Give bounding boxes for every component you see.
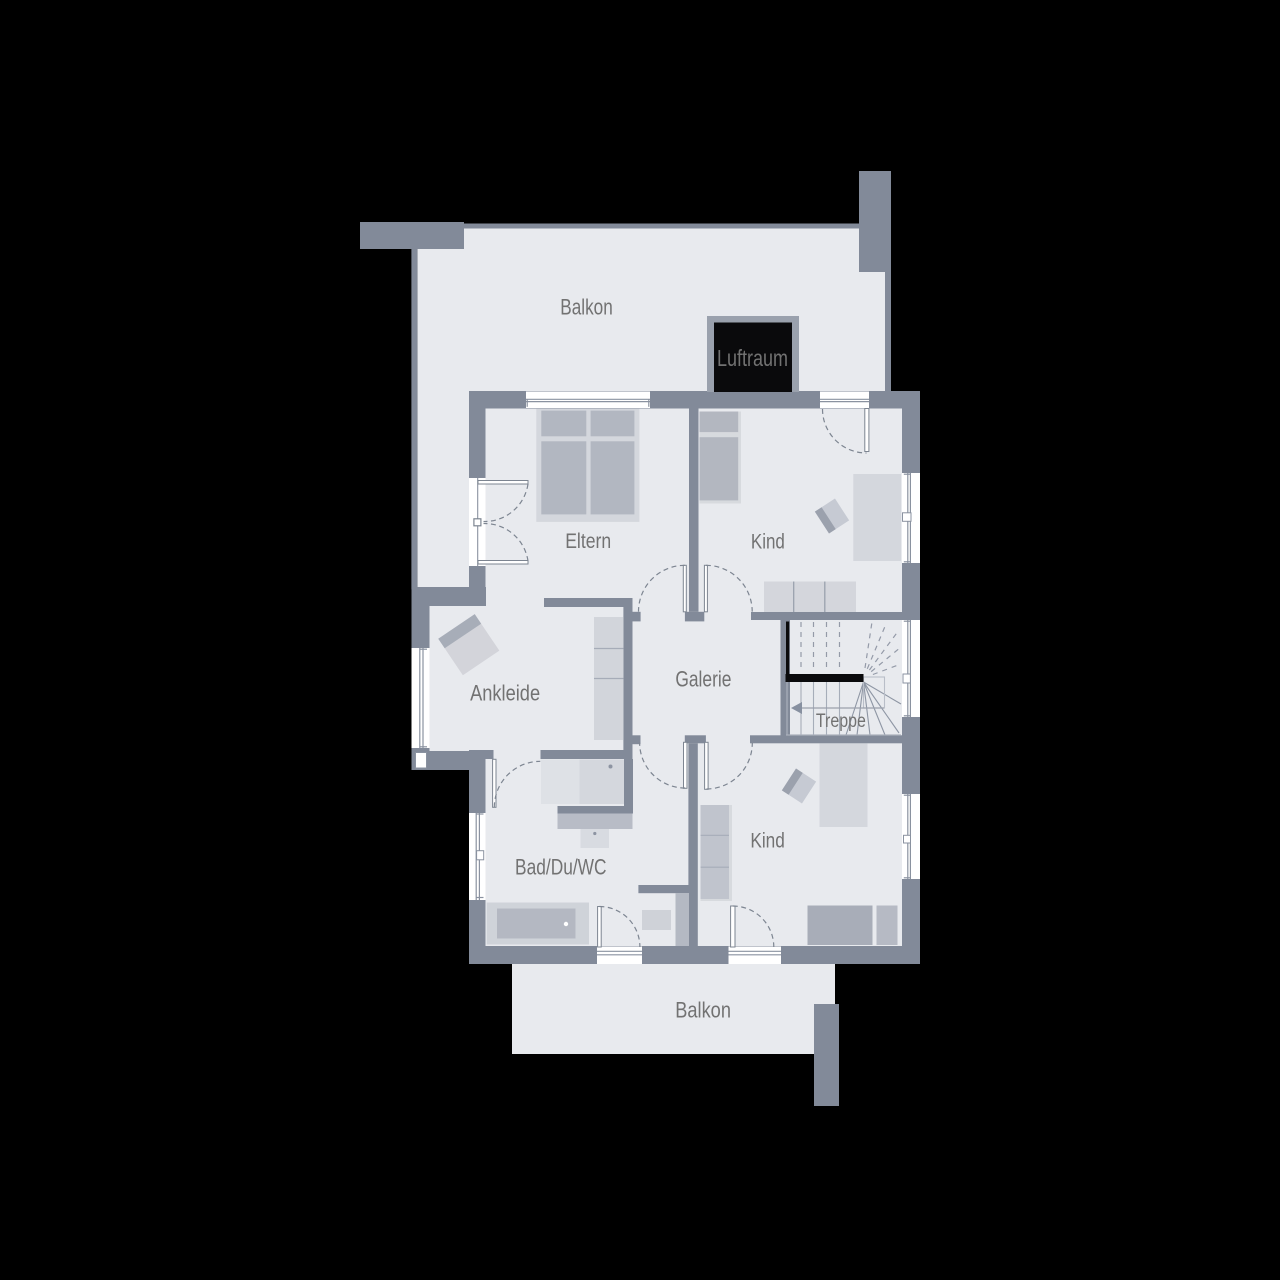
- svg-text:Ankleide: Ankleide: [470, 681, 540, 706]
- svg-text:Balkon: Balkon: [560, 295, 613, 320]
- svg-text:Treppe: Treppe: [816, 710, 866, 732]
- svg-text:Bad/Du/WC: Bad/Du/WC: [515, 855, 607, 880]
- svg-text:Luftraum: Luftraum: [717, 345, 788, 371]
- svg-text:Galerie: Galerie: [675, 667, 731, 692]
- svg-text:Kind: Kind: [750, 828, 785, 852]
- svg-text:Balkon: Balkon: [675, 998, 731, 1023]
- svg-text:Eltern: Eltern: [565, 530, 611, 553]
- svg-text:Kind: Kind: [751, 529, 785, 553]
